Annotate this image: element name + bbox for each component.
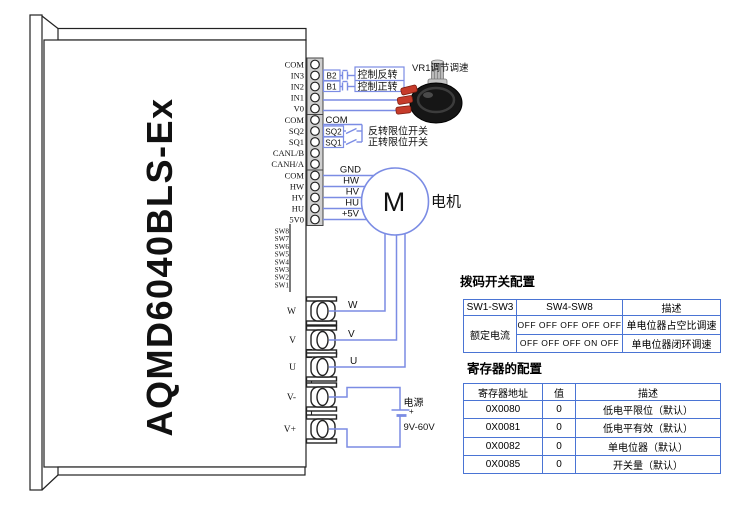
battery-symbol <box>392 410 410 416</box>
register-table-title: 寄存器的配置 <box>467 358 542 377</box>
sq1-desc: 正转限位开关 <box>368 136 428 149</box>
power-label: 电源 <box>404 396 424 409</box>
wiring-diagram-page: AQMD6040BLS-Ex COM IN3 IN2 IN1 V0 COM SQ… <box>0 0 750 505</box>
reg-desc: 低电平有效（默认） <box>576 419 721 437</box>
pin-circle <box>311 104 320 113</box>
phase-wire-label: V <box>348 329 355 340</box>
sq2-label: SQ2 <box>325 127 342 136</box>
pin-circle <box>311 116 320 125</box>
pin-label: CANL/B <box>273 148 305 158</box>
pin-label: SQ2 <box>289 126 304 136</box>
pin-circle <box>311 82 320 91</box>
power-range-label: 9V-60V <box>404 422 436 433</box>
pin-label: COM <box>285 115 305 125</box>
reg-val: 0 <box>543 419 576 437</box>
motor-label: 电机 <box>431 194 461 211</box>
power-wiring <box>329 388 400 448</box>
pin-circle <box>311 149 320 158</box>
model-label: AQMD6040BLS-Ex <box>139 97 180 436</box>
table-row: 0X0080 0 低电平限位（默认） <box>464 401 721 419</box>
reg-desc: 低电平限位（默认） <box>576 401 721 419</box>
pin-label: CANH/A <box>271 159 304 169</box>
com-wire-label: COM <box>326 115 348 126</box>
reg-val: 0 <box>543 401 576 419</box>
terminal-label: V+ <box>284 425 296 435</box>
terminal-label: U <box>289 363 296 373</box>
terminal-label: W <box>287 307 296 317</box>
sq2-desc: 反转限位开关 <box>368 125 428 138</box>
pin-circle <box>311 71 320 80</box>
hall-wire-label: GND <box>340 165 361 176</box>
reg-col-header: 描述 <box>576 384 721 401</box>
pin-label: HV <box>292 193 305 203</box>
pin-label: HW <box>290 182 304 192</box>
pin-circle <box>311 138 320 147</box>
dip-row-label: 额定电流 <box>464 316 517 353</box>
b1-desc: 控制正转 <box>358 80 398 93</box>
bottom-bevel <box>42 475 58 490</box>
pin-label: IN3 <box>291 71 304 81</box>
sq1-label: SQ1 <box>325 138 342 147</box>
pin-label: IN1 <box>291 93 304 103</box>
reg-val: 0 <box>543 437 576 455</box>
pin-circle <box>311 182 320 191</box>
pin-label: COM <box>285 60 305 70</box>
pin-label: COM <box>285 171 305 181</box>
phase-wire-label: W <box>348 300 358 311</box>
top-bevel <box>42 16 58 29</box>
dip-desc: 单电位器占空比调速 <box>623 316 721 335</box>
pin-circle <box>311 93 320 102</box>
pin-circle <box>311 171 320 180</box>
pin-circle <box>311 193 320 202</box>
pin-label: IN2 <box>291 82 304 92</box>
hall-wire-label: +5V <box>342 209 360 220</box>
terminal-label: V <box>289 336 296 346</box>
table-row: 0X0082 0 单电位器（默认） <box>464 437 721 455</box>
dip-col-header: SW1-SW3 <box>464 300 517 316</box>
pin-label: 5V0 <box>289 215 304 225</box>
dip-col-header: SW4-SW8 <box>517 300 623 316</box>
hall-wire-label: HU <box>345 198 359 209</box>
pin-circle <box>311 215 320 224</box>
pin-circle <box>311 60 320 69</box>
b2-desc: 控制反转 <box>358 68 398 81</box>
b2-label: B2 <box>326 71 336 80</box>
table-row: 0X0085 0 开关量（默认） <box>464 455 721 473</box>
reg-col-header: 寄存器地址 <box>464 384 543 401</box>
reg-val: 0 <box>543 455 576 473</box>
pin-circle <box>311 127 320 136</box>
top-face <box>58 29 306 41</box>
dip-desc: 单电位器闭环调速 <box>623 334 721 353</box>
dip-table-title: 拨码开关配置 <box>460 271 535 290</box>
pin-label: HU <box>292 204 304 214</box>
reg-col-header: 值 <box>543 384 576 401</box>
reg-addr: 0X0080 <box>464 401 543 419</box>
dip-col-header: 描述 <box>623 300 721 316</box>
register-config-table: 寄存器地址 值 描述 0X0080 0 低电平限位（默认） 0X0081 0 低… <box>463 383 721 474</box>
reg-addr: 0X0081 <box>464 419 543 437</box>
b1-label: B1 <box>326 82 336 91</box>
hall-wire-label: HV <box>346 187 360 198</box>
mounting-plate <box>30 15 42 490</box>
motor-symbol: M <box>383 187 406 217</box>
table-row: 0X0081 0 低电平有效（默认） <box>464 419 721 437</box>
terminal-lugs <box>307 297 337 443</box>
pin-circle <box>311 204 320 213</box>
hall-wire-label: HW <box>343 176 359 187</box>
phase-wire-label: U <box>350 356 357 367</box>
dip-switch-labels: SW8 SW7 SW6 SW5 SW4 SW3 SW2 SW1 <box>275 228 290 290</box>
phase-wires <box>329 234 405 368</box>
reg-desc: 单电位器（默认） <box>576 437 721 455</box>
dip-sw-setting: OFF OFF OFF OFF OFF <box>517 316 623 335</box>
dip-switch-label: SW1 <box>275 281 290 289</box>
pin-circle <box>311 160 320 169</box>
table-row: 额定电流 OFF OFF OFF OFF OFF 单电位器占空比调速 <box>464 316 721 335</box>
hall-wire-labels: GND HW HV HU +5V <box>340 165 361 220</box>
pot-label: VR1调节调速 <box>412 63 469 74</box>
dip-config-table: SW1-SW3 SW4-SW8 描述 额定电流 OFF OFF OFF OFF … <box>463 299 721 353</box>
reg-addr: 0X0082 <box>464 437 543 455</box>
reg-addr: 0X0085 <box>464 455 543 473</box>
pin-circles <box>311 60 320 224</box>
reg-desc: 开关量（默认） <box>576 455 721 473</box>
pin-label: SQ1 <box>289 137 304 147</box>
pin-label: V0 <box>294 104 304 114</box>
dip-sw-setting: OFF OFF OFF ON OFF <box>517 334 623 353</box>
bottom-face <box>58 467 305 475</box>
terminal-label: V- <box>287 393 296 403</box>
